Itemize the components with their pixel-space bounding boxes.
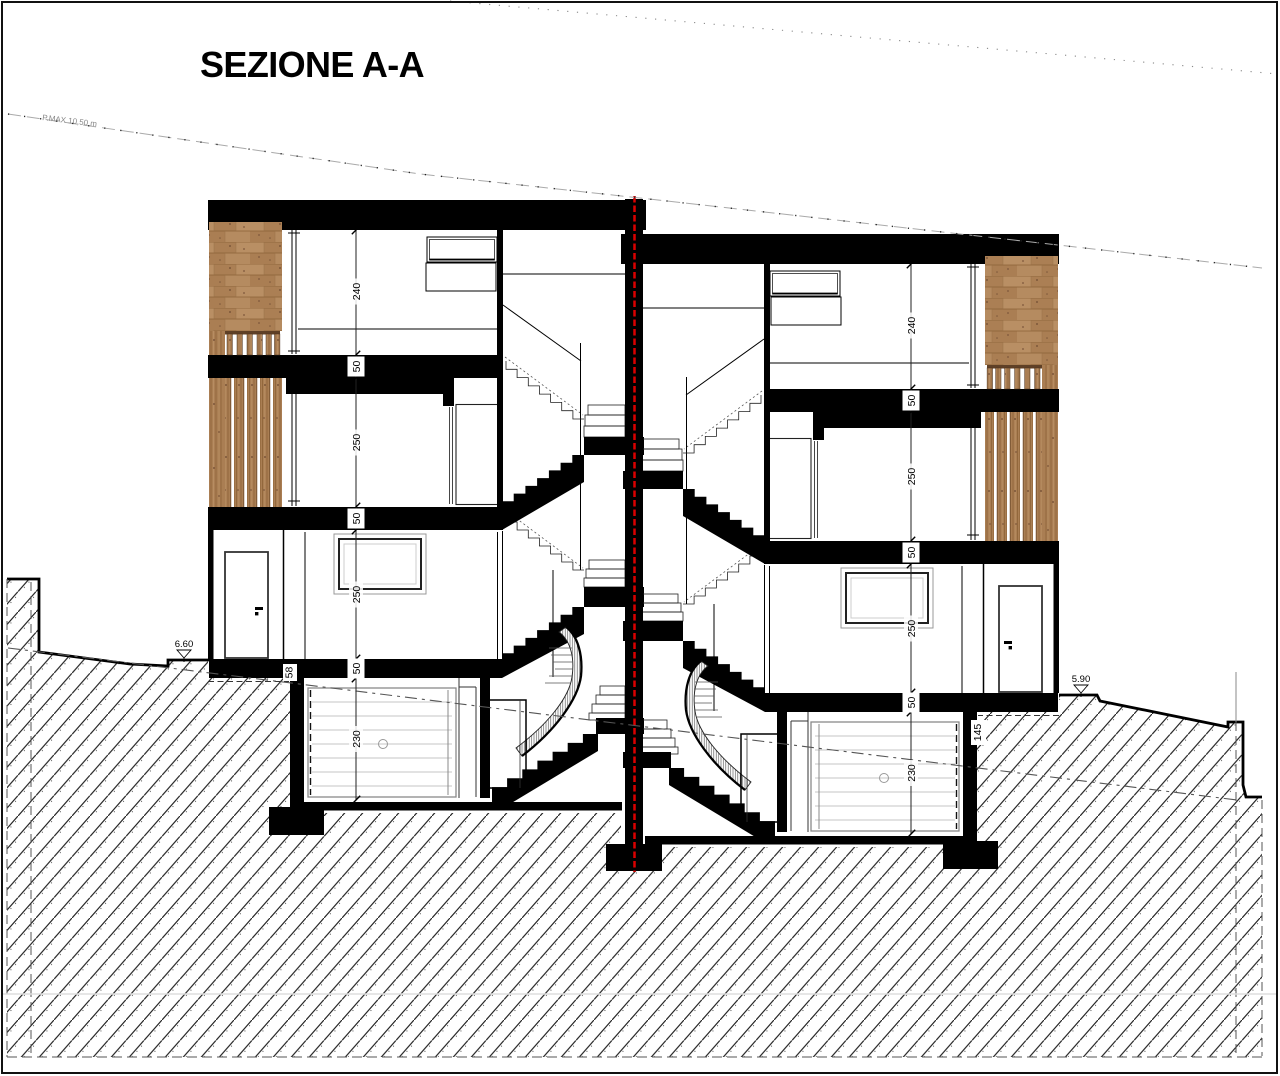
svg-text:50: 50 (351, 663, 363, 675)
svg-text:250: 250 (906, 468, 918, 486)
svg-text:SEZIONE A-A: SEZIONE A-A (200, 44, 425, 85)
svg-text:50: 50 (906, 697, 918, 709)
svg-text:240: 240 (351, 283, 363, 301)
svg-text:50: 50 (906, 395, 918, 407)
svg-text:145: 145 (972, 724, 984, 742)
svg-text:250: 250 (906, 620, 918, 638)
svg-text:50: 50 (351, 361, 363, 373)
svg-text:240: 240 (906, 317, 918, 335)
svg-text:5.90: 5.90 (1072, 674, 1091, 685)
svg-text:50: 50 (906, 547, 918, 559)
svg-text:50: 50 (351, 513, 363, 525)
svg-text:230: 230 (351, 730, 363, 748)
svg-text:58: 58 (284, 667, 296, 679)
svg-text:6.60: 6.60 (175, 639, 194, 650)
svg-text:250: 250 (351, 434, 363, 452)
svg-text:250: 250 (351, 586, 363, 604)
svg-text:230: 230 (906, 764, 918, 782)
